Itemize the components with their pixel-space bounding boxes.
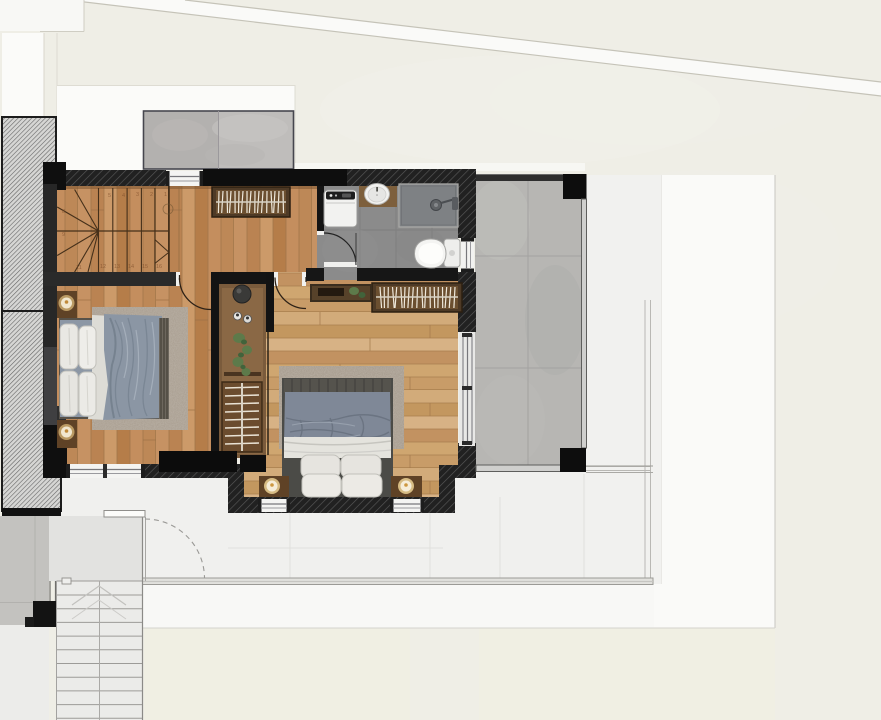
svg-text:2: 2	[150, 192, 153, 198]
svg-text:8: 8	[62, 209, 65, 215]
svg-text:1: 1	[164, 192, 167, 198]
svg-text:11: 11	[76, 265, 82, 271]
svg-text:4: 4	[122, 193, 125, 199]
svg-text:15: 15	[142, 264, 148, 270]
svg-text:5: 5	[108, 193, 111, 199]
svg-text:16: 16	[156, 264, 162, 270]
svg-text:12: 12	[100, 264, 106, 270]
svg-text:14: 14	[128, 264, 134, 270]
svg-text:9: 9	[62, 232, 65, 238]
svg-text:3: 3	[136, 192, 139, 198]
svg-text:13: 13	[114, 264, 120, 270]
